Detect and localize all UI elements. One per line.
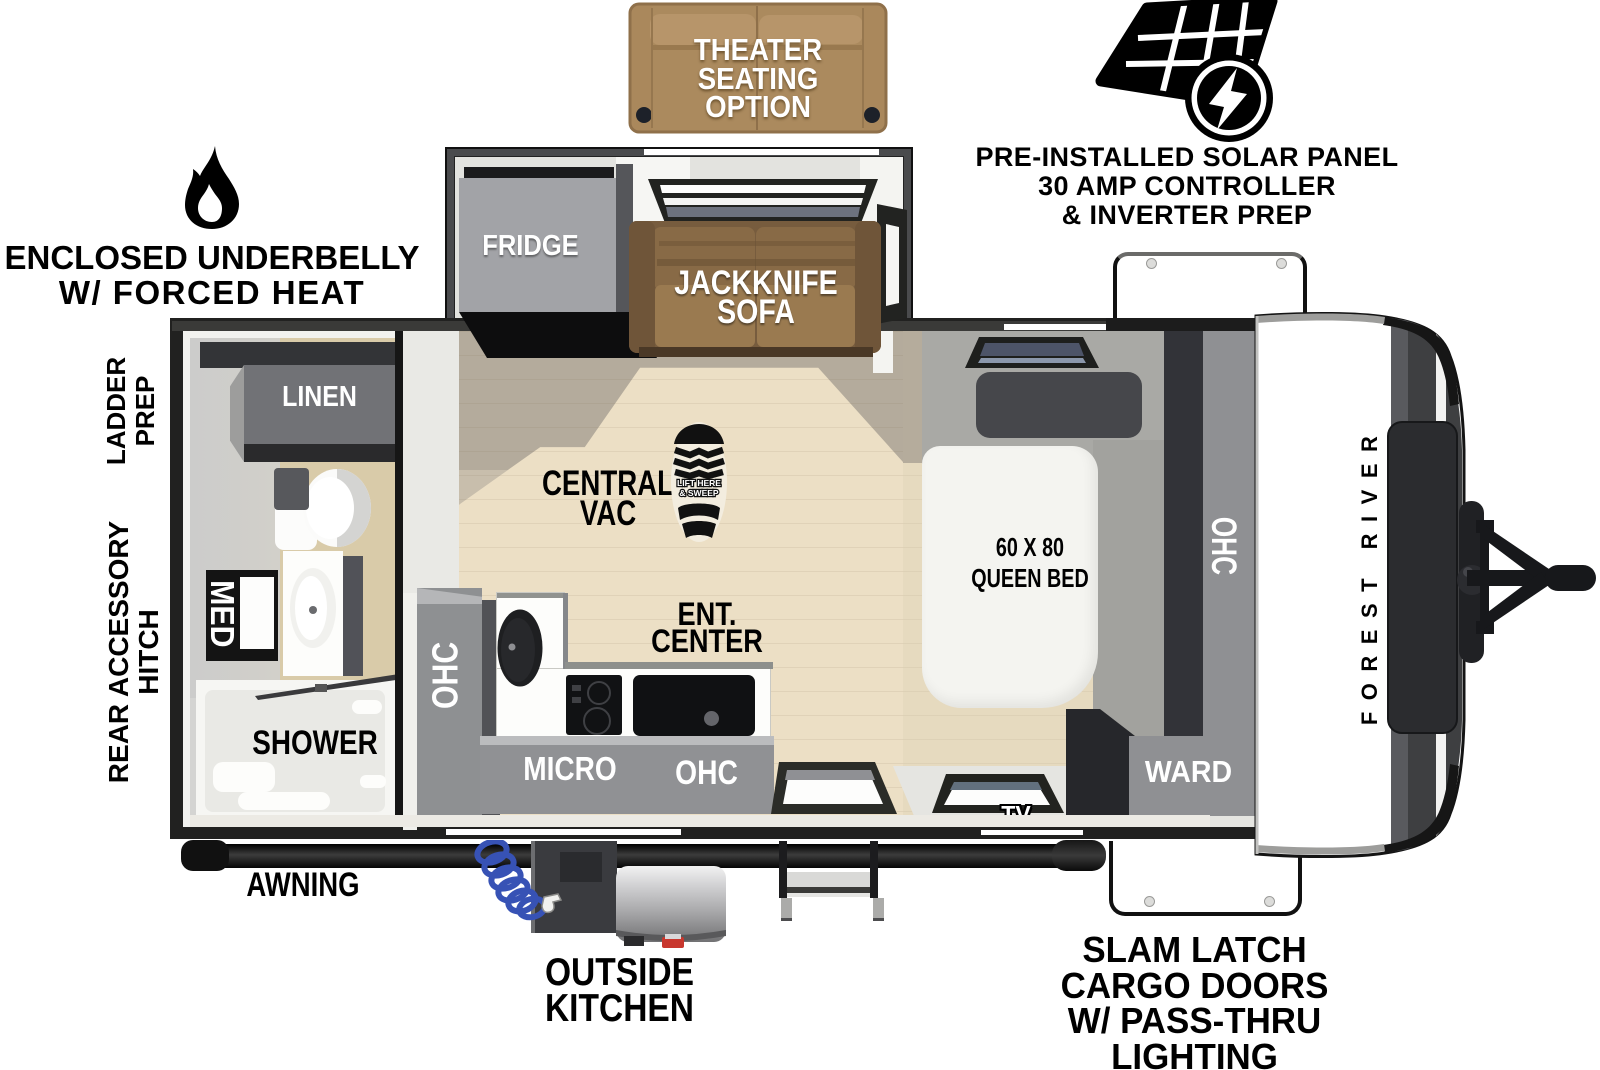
- svg-text:LIFT HERE: LIFT HERE: [677, 478, 721, 488]
- svg-text:& SWEEP: & SWEEP: [679, 488, 719, 498]
